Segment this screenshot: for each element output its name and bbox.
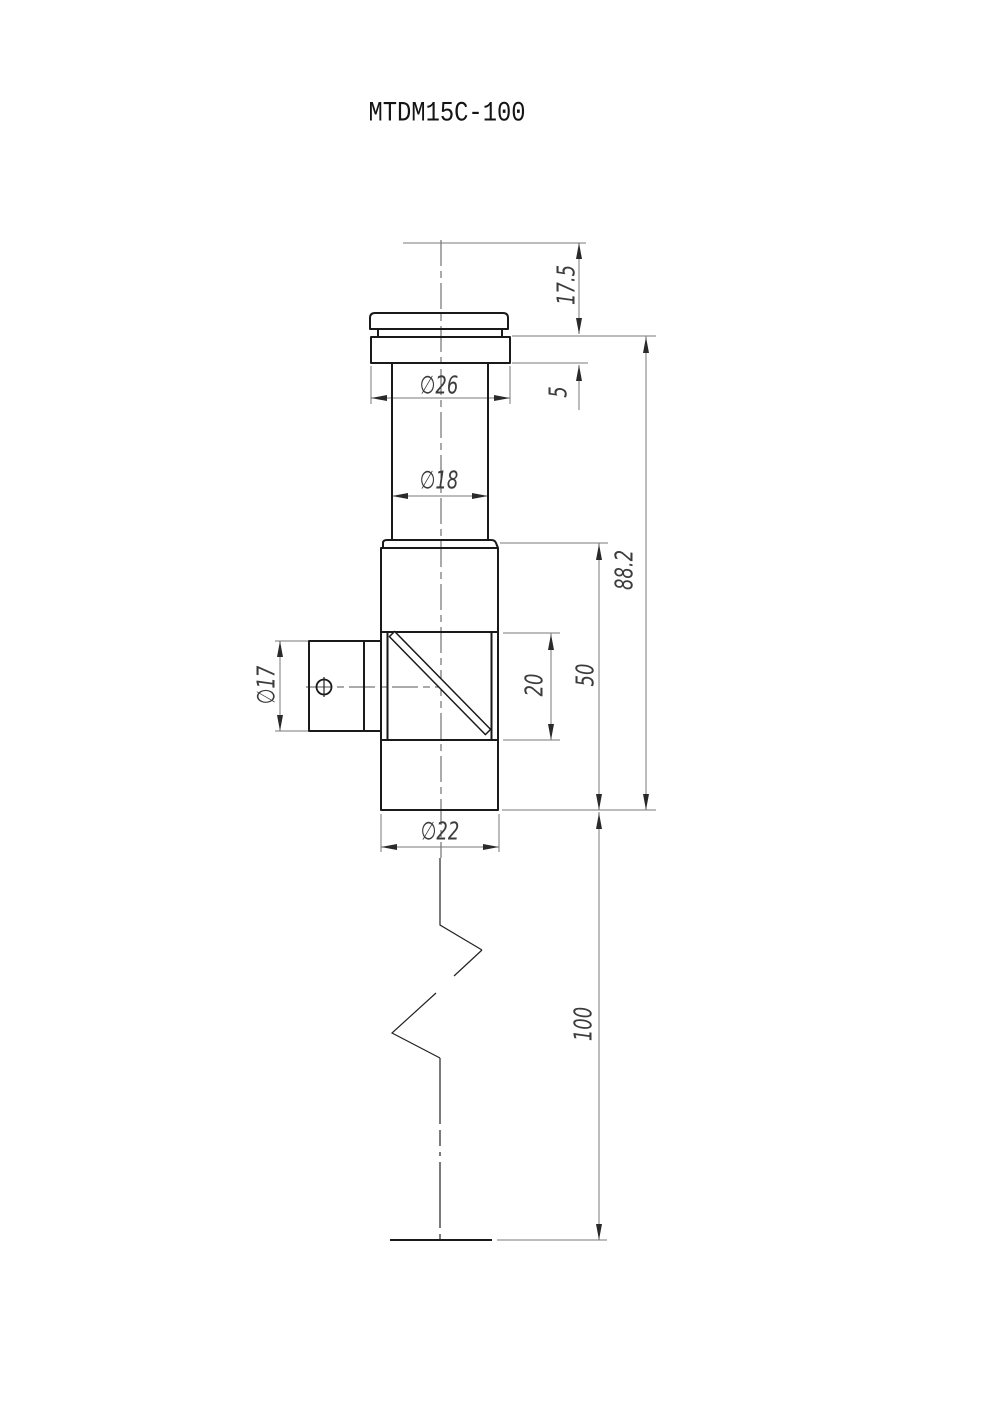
technical-drawing-page: MTDM15C-100 17.5 5 ∅26 ∅18 88.2 50 20 ∅1… — [0, 0, 992, 1403]
dim-label-window-height: 20 — [520, 674, 549, 697]
mirror-45deg — [389, 631, 490, 734]
part-outline — [309, 313, 510, 1240]
dim-label-tube-diameter: ∅18 — [420, 466, 459, 495]
dim-label-flange-thickness: 5 — [544, 386, 573, 397]
cap-ring — [378, 329, 502, 337]
dim-label-top-offset: 17.5 — [552, 265, 581, 305]
dimension-arrowheads — [277, 243, 649, 1240]
dim-label-overall-body-length: 88.2 — [610, 550, 639, 590]
drawing-linework — [0, 0, 992, 1403]
dim-label-rod-length: 100 — [569, 1007, 598, 1041]
dim-label-body-section-length: 50 — [571, 664, 600, 687]
break-symbol — [324, 677, 482, 1240]
drawing-title: MTDM15C-100 — [368, 99, 525, 130]
side-port — [309, 641, 381, 731]
dim-label-side-port-diameter: ∅17 — [252, 666, 281, 705]
dimension-lines — [280, 243, 646, 1240]
dim-label-body-diameter: ∅22 — [421, 817, 460, 846]
dim-label-flange-diameter: ∅26 — [420, 371, 459, 400]
eyepiece-cap — [370, 313, 508, 329]
